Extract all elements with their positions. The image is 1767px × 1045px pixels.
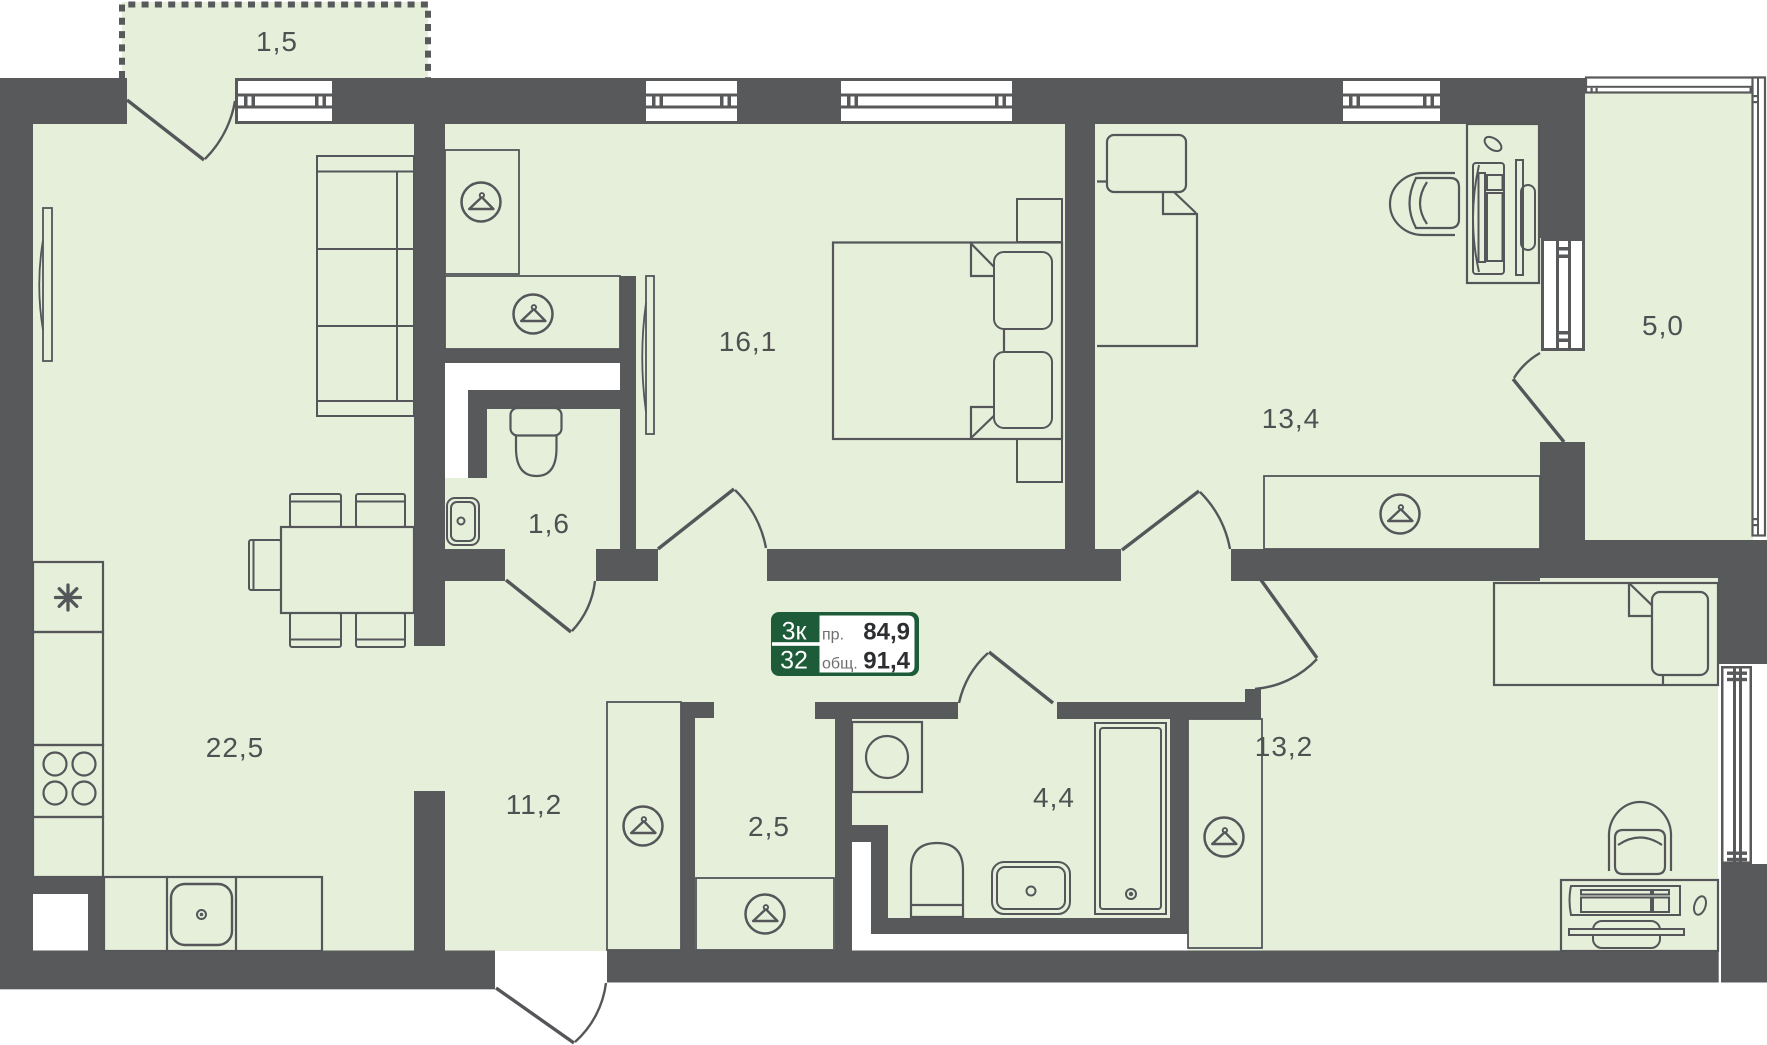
svg-text:32: 32	[780, 647, 808, 675]
svg-text:5,0: 5,0	[1642, 310, 1684, 341]
svg-text:22,5: 22,5	[206, 732, 265, 763]
svg-text:84,9: 84,9	[863, 619, 910, 646]
svg-text:91,4: 91,4	[863, 648, 910, 675]
svg-text:пр.: пр.	[822, 627, 844, 644]
svg-text:2,5: 2,5	[748, 811, 790, 842]
svg-text:общ.: общ.	[822, 656, 858, 673]
svg-text:13,4: 13,4	[1262, 403, 1321, 434]
svg-text:1,6: 1,6	[528, 508, 570, 539]
svg-text:11,2: 11,2	[506, 789, 562, 820]
svg-text:16,1: 16,1	[719, 326, 778, 357]
svg-text:4,4: 4,4	[1033, 782, 1075, 813]
svg-text:3к: 3к	[782, 618, 808, 646]
svg-text:13,2: 13,2	[1255, 731, 1314, 762]
svg-text:1,5: 1,5	[256, 26, 298, 57]
